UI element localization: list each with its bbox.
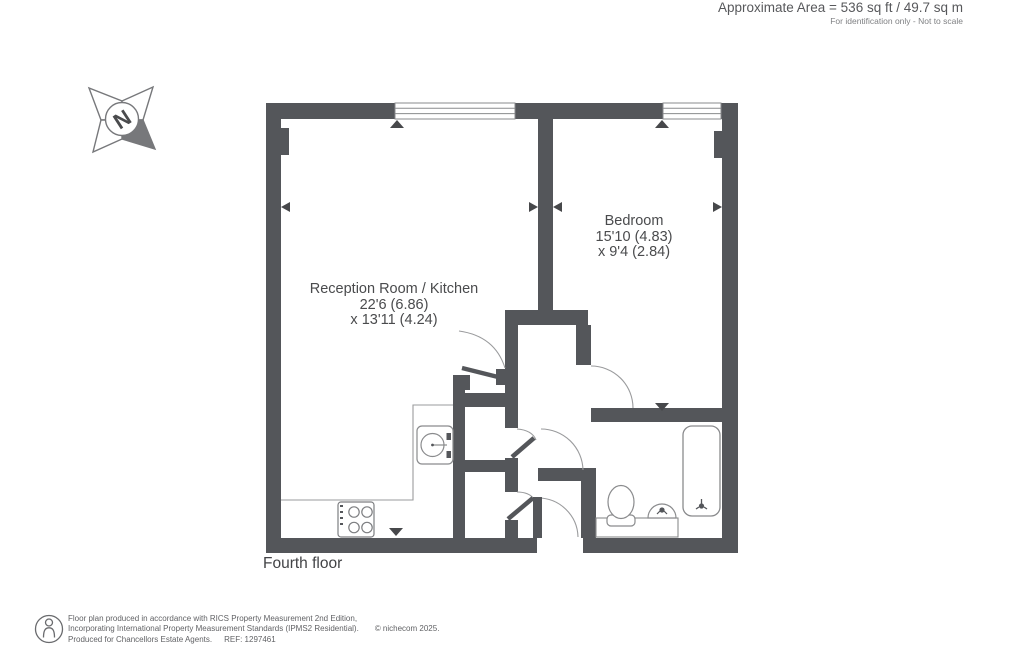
bathroom-door-arc bbox=[541, 429, 583, 470]
arrow-left-divider bbox=[553, 202, 562, 212]
nichecom-copyright: © nichecom 2025. bbox=[375, 624, 440, 634]
bedroom-dims-1: 15'10 (4.83) bbox=[554, 230, 714, 246]
hand-basin bbox=[648, 504, 676, 518]
not-to-scale-label: For identification only - Not to scale bbox=[830, 16, 963, 26]
cupboard-door-leaf-2 bbox=[508, 498, 533, 519]
bedroom-dims-2: x 9'4 (2.84) bbox=[554, 245, 714, 261]
bedroom-room-name: Bedroom bbox=[554, 214, 714, 230]
arrow-left-reception bbox=[281, 202, 290, 212]
reception-dims-2: x 13'11 (4.24) bbox=[294, 313, 494, 329]
reception-door-arc bbox=[459, 331, 505, 368]
footer-line-3: Produced for Chancellors Estate Agents.R… bbox=[68, 635, 439, 645]
kitchen-sink bbox=[417, 426, 453, 464]
reception-room-name: Reception Room / Kitchen bbox=[294, 282, 494, 298]
cupboard-door-leaf-1 bbox=[512, 438, 534, 457]
reception-dims-1: 22'6 (6.86) bbox=[294, 298, 494, 314]
entrance-door-leaf bbox=[533, 497, 542, 538]
kitchen-hob bbox=[338, 502, 374, 537]
room-label-reception: Reception Room / Kitchen 22'6 (6.86) x 1… bbox=[294, 282, 494, 329]
door-leaves bbox=[462, 368, 534, 519]
entrance-door-arc bbox=[538, 498, 578, 537]
arrow-up-bedroom bbox=[655, 120, 669, 128]
arrow-right-bedroom bbox=[713, 202, 722, 212]
arrow-down-reception bbox=[389, 528, 403, 536]
approx-area-label: Approximate Area = 536 sq ft / 49.7 sq m bbox=[718, 0, 963, 15]
entrance-opening bbox=[537, 538, 583, 553]
footer-line-2: Incorporating International Property Mea… bbox=[68, 624, 439, 634]
toilet bbox=[607, 486, 635, 527]
bedroom-door-arc bbox=[591, 366, 633, 408]
floor-label: Fourth floor bbox=[263, 555, 342, 573]
arrow-up-reception bbox=[390, 120, 404, 128]
floorplan-drawing: N bbox=[0, 0, 1024, 660]
person-icon bbox=[36, 616, 63, 643]
footer-disclaimer: Floor plan produced in accordance with R… bbox=[68, 614, 439, 645]
ref-number: REF: 1297461 bbox=[224, 635, 276, 645]
room-label-bedroom: Bedroom 15'10 (4.83) x 9'4 (2.84) bbox=[554, 214, 714, 261]
arrow-right-divider bbox=[529, 202, 538, 212]
window-reception bbox=[395, 103, 515, 119]
footer-line-1: Floor plan produced in accordance with R… bbox=[68, 614, 439, 624]
bathtub bbox=[683, 426, 720, 516]
door-arcs bbox=[459, 331, 633, 537]
north-compass-icon: N bbox=[89, 87, 155, 152]
window-bedroom bbox=[663, 103, 721, 119]
floorplan-page: N bbox=[0, 0, 1024, 660]
